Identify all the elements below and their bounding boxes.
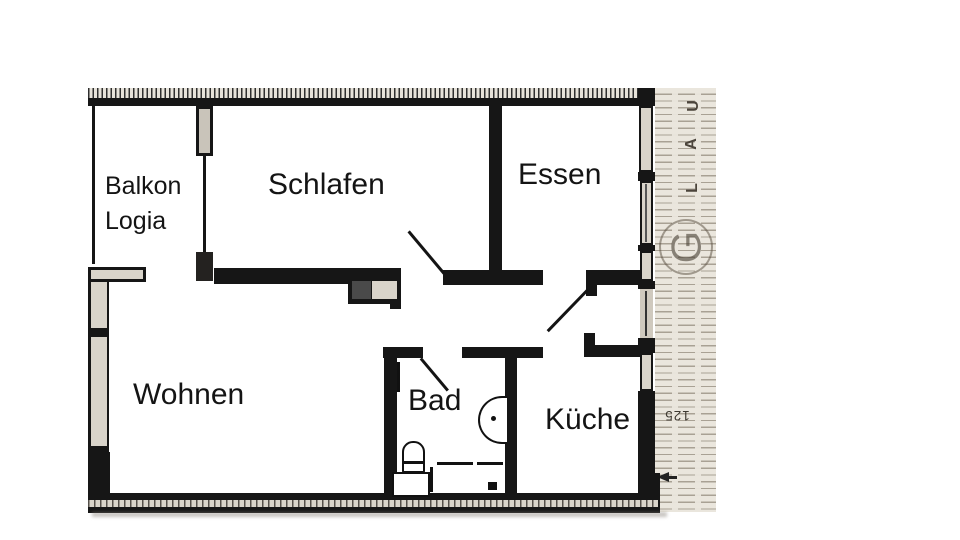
essen-door-leaf	[547, 288, 589, 332]
gallery-letter-u: U	[685, 100, 703, 112]
g-stamp-circle: G	[659, 219, 713, 275]
wall-bad-top-right	[462, 347, 543, 358]
gallery-letter-l: L	[684, 183, 702, 193]
schlafen-door-leaf	[407, 230, 445, 274]
balcony-glass-line	[203, 155, 206, 254]
tub-drain-dot	[488, 482, 497, 490]
entrance-door-line	[645, 291, 647, 336]
floor-plan: U A L G 125	[0, 0, 960, 540]
sink-drain-dot	[491, 416, 496, 421]
wall-right-sep-1	[638, 172, 655, 181]
shaft-box-inner-light	[372, 281, 397, 299]
wall-right-lower	[638, 391, 655, 473]
wall-kueche-top	[584, 345, 640, 357]
wall-schlafen-essen-divider	[489, 100, 502, 284]
bad-wall-mark-line	[397, 362, 400, 392]
wohnen-label: Wohnen	[133, 378, 244, 412]
tub-line-2	[477, 462, 503, 465]
wall-left-separator-1	[88, 328, 109, 337]
kueche-window	[640, 353, 653, 391]
bad-label: Bad	[408, 384, 461, 418]
wohnen-top-left-window-bar	[88, 267, 146, 282]
balkon-label: Balkon	[105, 172, 181, 201]
essen-window-2-glass-line	[645, 184, 647, 242]
shaft-box-nub	[390, 301, 401, 309]
tub-line-1	[437, 462, 473, 465]
g-stamp-letter: G	[665, 231, 707, 264]
balcony-divider-wall	[196, 106, 213, 156]
balcony-pier	[196, 252, 213, 281]
wall-right-pier	[640, 251, 653, 281]
gallery-letter-a: A	[683, 138, 701, 150]
tub-line-vertical	[430, 467, 433, 492]
wall-essen-right-stub	[586, 270, 640, 285]
balcony-edge-line	[92, 106, 95, 264]
essen-label: Essen	[518, 158, 601, 192]
wall-bottom-shadow	[92, 512, 667, 517]
schlafen-label: Schlafen	[268, 168, 385, 202]
toilet-seat-line	[404, 461, 423, 464]
dimension-125: 125	[652, 408, 702, 423]
wall-kueche-top-nub	[584, 333, 595, 345]
entrance-arrow-shaft	[668, 476, 677, 479]
gallery-hatched-area	[655, 88, 716, 512]
essen-window-1	[639, 106, 653, 172]
wall-right-sep-3	[638, 281, 655, 289]
wall-right-top-corner	[638, 88, 655, 106]
logia-label: Logia	[105, 207, 166, 236]
wall-top	[88, 98, 655, 106]
shaft-box-inner-dark	[352, 281, 371, 299]
kueche-label: Küche	[545, 403, 630, 437]
toilet-icon	[402, 441, 425, 473]
wall-right-sep-4	[638, 338, 655, 353]
toilet-cistern	[392, 472, 430, 497]
